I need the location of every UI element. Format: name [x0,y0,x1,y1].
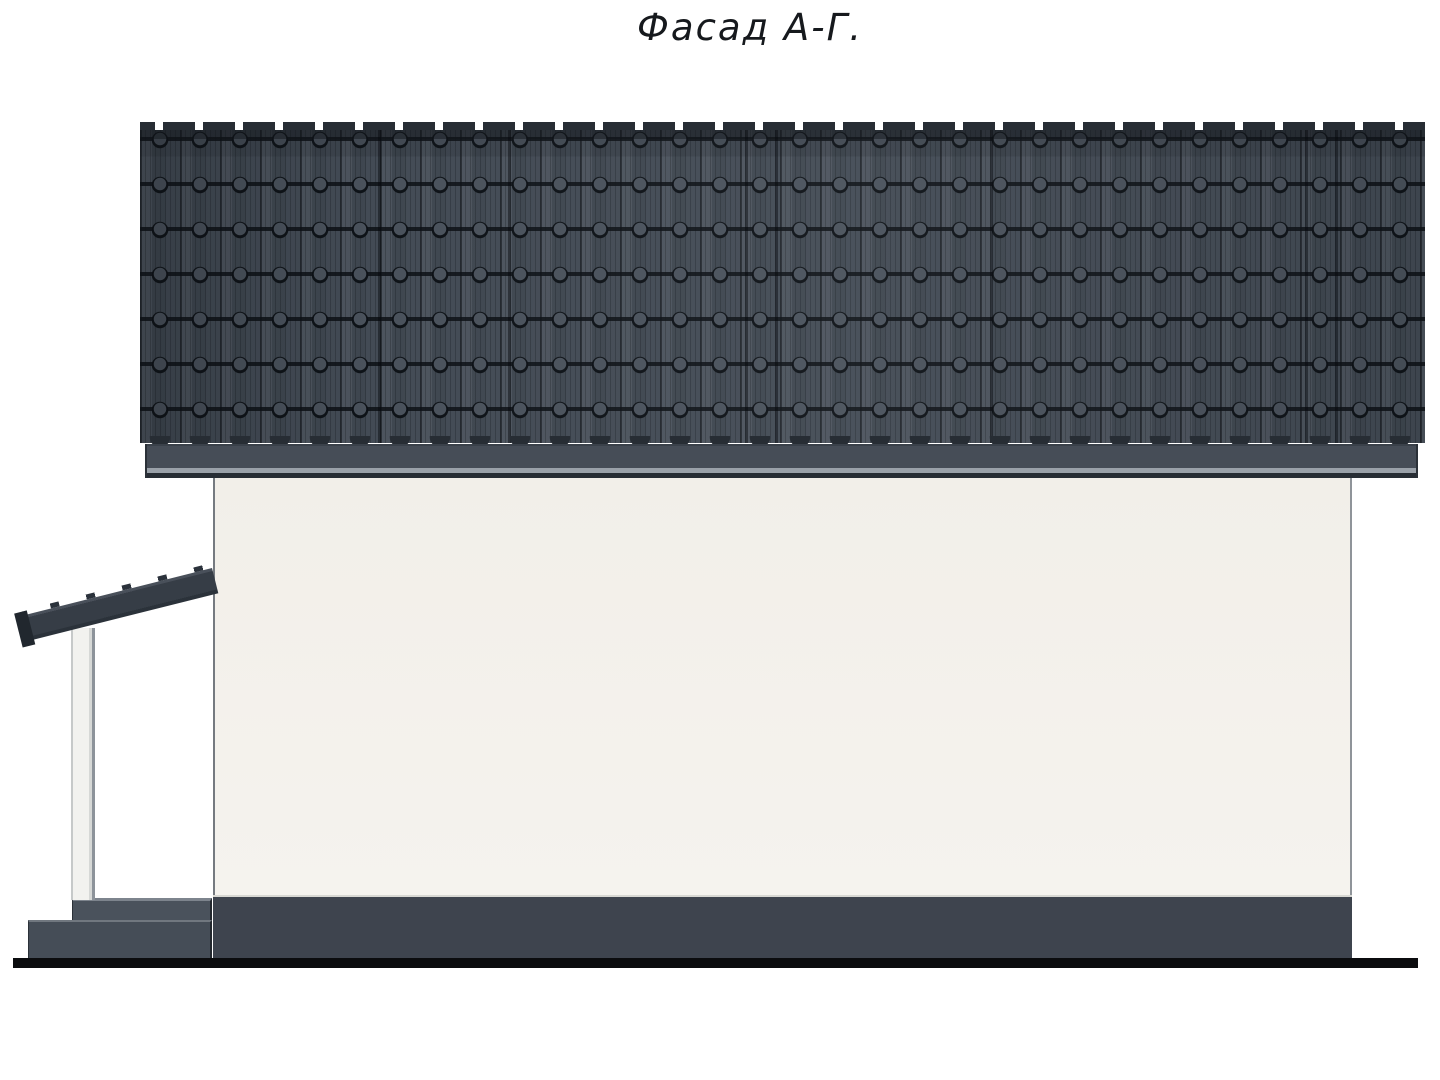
fascia-board [145,444,1418,478]
roof-seam [1335,130,1338,443]
porch-canopy-beam [18,568,218,642]
canopy-end-cap [14,610,35,647]
roof-seam [990,130,993,443]
ground-line [13,958,1418,968]
roof-seam [745,130,748,443]
wall [213,478,1352,895]
roof-seam [508,130,511,443]
drawing-title: Фасад А-Г. [637,6,863,49]
roof-tiles [140,130,1425,443]
roof-seam [1305,130,1308,443]
elevation-drawing: Фасад А-Г. [0,0,1440,1080]
wall-plinth [213,895,1352,958]
porch-step-lower [28,920,212,958]
porch-post [71,628,95,900]
roof-seam [775,130,778,443]
roof-seam [378,130,381,443]
